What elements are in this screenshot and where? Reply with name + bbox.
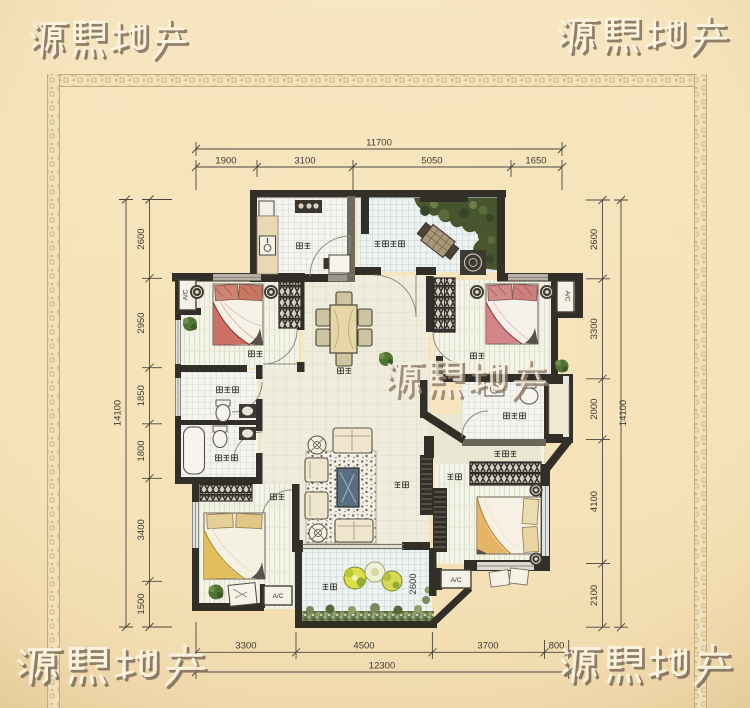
svg-text:A/C: A/C bbox=[273, 593, 284, 600]
svg-text:4100: 4100 bbox=[589, 491, 600, 512]
svg-text:2600: 2600 bbox=[408, 573, 419, 594]
svg-text:3700: 3700 bbox=[477, 641, 498, 652]
svg-text:1650: 1650 bbox=[525, 156, 546, 167]
svg-text:3300: 3300 bbox=[589, 318, 600, 339]
svg-text:3100: 3100 bbox=[294, 156, 315, 167]
svg-text:2950: 2950 bbox=[136, 312, 147, 333]
svg-text:1850: 1850 bbox=[136, 385, 147, 406]
svg-text:1900: 1900 bbox=[215, 156, 236, 167]
svg-text:2600: 2600 bbox=[589, 229, 600, 250]
svg-text:4500: 4500 bbox=[353, 641, 374, 652]
svg-text:A/C: A/C bbox=[183, 289, 190, 300]
svg-text:A/C: A/C bbox=[564, 291, 571, 302]
svg-text:800: 800 bbox=[549, 641, 565, 652]
svg-text:12300: 12300 bbox=[369, 661, 395, 672]
svg-text:3400: 3400 bbox=[136, 519, 147, 540]
svg-text:14100: 14100 bbox=[618, 400, 629, 426]
svg-text:14100: 14100 bbox=[113, 400, 124, 426]
svg-text:2600: 2600 bbox=[136, 228, 147, 249]
svg-text:2000: 2000 bbox=[589, 399, 600, 420]
svg-text:1500: 1500 bbox=[136, 593, 147, 614]
svg-text:A/C: A/C bbox=[451, 577, 462, 584]
svg-text:3300: 3300 bbox=[235, 641, 256, 652]
svg-text:11700: 11700 bbox=[366, 138, 392, 149]
svg-text:2100: 2100 bbox=[589, 585, 600, 606]
svg-text:5050: 5050 bbox=[421, 156, 442, 167]
svg-text:1800: 1800 bbox=[136, 440, 147, 461]
